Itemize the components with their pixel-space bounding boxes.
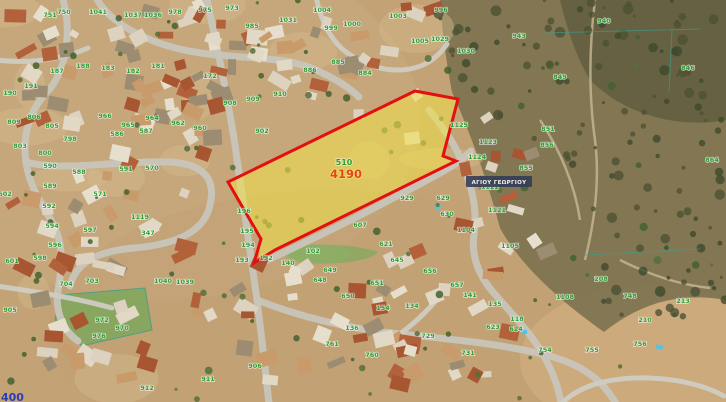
svg-text:960: 960 <box>193 124 207 132</box>
svg-text:756: 756 <box>633 340 647 348</box>
svg-text:912: 912 <box>140 384 154 392</box>
svg-text:1037: 1037 <box>124 11 142 19</box>
svg-text:970: 970 <box>115 324 129 332</box>
svg-text:570: 570 <box>145 164 159 172</box>
svg-text:902: 902 <box>255 127 269 135</box>
street-name-text: ΑΓΙΟΥ ΓΕΩΡΓΙΟΥ <box>472 180 527 186</box>
svg-text:208: 208 <box>594 275 608 283</box>
parcel-lot-number: 510 <box>336 158 353 167</box>
svg-text:118: 118 <box>510 315 524 323</box>
svg-text:602: 602 <box>0 190 12 198</box>
svg-text:855: 855 <box>519 164 533 172</box>
svg-text:135: 135 <box>488 300 502 308</box>
svg-text:656: 656 <box>423 267 437 275</box>
svg-text:213: 213 <box>676 297 690 305</box>
svg-text:657: 657 <box>450 281 464 289</box>
svg-text:597: 597 <box>83 226 97 234</box>
svg-text:592: 592 <box>42 202 56 210</box>
svg-text:187: 187 <box>50 67 64 75</box>
svg-text:588: 588 <box>72 168 86 176</box>
svg-text:607: 607 <box>353 221 367 229</box>
svg-text:965: 965 <box>121 121 135 129</box>
svg-text:181: 181 <box>151 62 165 70</box>
grid-coordinate-label: 400 <box>1 391 24 402</box>
svg-text:806: 806 <box>27 113 41 121</box>
parcel-area-label: 4190 <box>330 167 362 181</box>
svg-text:650: 650 <box>341 292 355 300</box>
svg-text:154: 154 <box>376 304 390 312</box>
svg-text:193: 193 <box>235 256 249 264</box>
svg-text:703: 703 <box>85 277 99 285</box>
svg-text:188: 188 <box>76 62 90 70</box>
svg-text:729: 729 <box>421 332 435 340</box>
svg-text:1040: 1040 <box>154 277 173 285</box>
svg-text:1105: 1105 <box>501 242 520 250</box>
svg-text:975: 975 <box>198 6 212 14</box>
svg-text:972: 972 <box>95 316 109 324</box>
svg-text:102: 102 <box>306 247 320 255</box>
svg-text:943: 943 <box>512 32 526 40</box>
svg-text:1125: 1125 <box>450 121 469 129</box>
street-name-label: ΑΓΙΟΥ ΓΕΩΡΓΙΟΥ <box>466 176 532 187</box>
svg-text:905: 905 <box>3 306 17 314</box>
svg-text:596: 596 <box>48 241 62 249</box>
svg-text:849: 849 <box>553 73 567 81</box>
svg-text:1003: 1003 <box>389 12 407 20</box>
svg-text:885: 885 <box>331 58 345 66</box>
svg-text:731: 731 <box>461 349 475 357</box>
svg-text:190: 190 <box>3 89 17 97</box>
svg-text:803: 803 <box>13 142 27 150</box>
svg-text:704: 704 <box>59 280 73 288</box>
svg-text:846: 846 <box>681 64 695 72</box>
svg-text:134: 134 <box>405 302 419 310</box>
svg-text:182: 182 <box>126 67 140 75</box>
svg-text:755: 755 <box>585 346 599 354</box>
svg-text:623: 623 <box>486 323 500 331</box>
svg-text:624: 624 <box>509 325 523 333</box>
svg-text:183: 183 <box>101 64 115 72</box>
svg-text:964: 964 <box>145 114 159 122</box>
svg-text:172: 172 <box>203 72 217 80</box>
svg-text:194: 194 <box>241 241 255 249</box>
svg-text:1121: 1121 <box>488 206 507 214</box>
svg-text:978: 978 <box>168 8 182 16</box>
svg-text:601: 601 <box>5 257 19 265</box>
svg-text:909: 909 <box>246 95 260 103</box>
svg-text:761: 761 <box>325 340 339 348</box>
svg-text:598: 598 <box>33 254 47 262</box>
svg-text:1000: 1000 <box>343 20 362 28</box>
svg-text:751: 751 <box>43 11 57 19</box>
svg-text:1119: 1119 <box>131 213 150 221</box>
svg-text:140: 140 <box>281 259 295 267</box>
svg-text:136: 136 <box>345 324 359 332</box>
svg-text:651: 651 <box>370 279 384 287</box>
svg-text:966: 966 <box>98 112 112 120</box>
svg-text:587: 587 <box>139 127 153 135</box>
svg-text:908: 908 <box>223 99 237 107</box>
svg-text:760: 760 <box>365 351 379 359</box>
map-viewport[interactable]: 7517501041103710369789759739851031100499… <box>0 0 726 402</box>
svg-text:1104: 1104 <box>457 226 476 234</box>
svg-text:999: 999 <box>324 24 338 32</box>
svg-text:906: 906 <box>248 362 262 370</box>
svg-text:192: 192 <box>259 254 273 262</box>
svg-text:1124: 1124 <box>468 153 487 161</box>
svg-text:1005: 1005 <box>411 37 430 45</box>
svg-text:621: 621 <box>379 240 393 248</box>
svg-text:940: 940 <box>597 17 611 25</box>
svg-text:929: 929 <box>400 194 414 202</box>
svg-text:754: 754 <box>538 346 552 354</box>
svg-text:911: 911 <box>201 375 215 383</box>
svg-text:962: 962 <box>171 119 185 127</box>
svg-text:1030: 1030 <box>457 47 476 55</box>
svg-text:851: 851 <box>541 125 555 133</box>
svg-text:910: 910 <box>273 90 287 98</box>
svg-text:748: 748 <box>623 292 637 300</box>
svg-text:1004: 1004 <box>313 6 332 14</box>
svg-text:884: 884 <box>358 69 372 77</box>
svg-text:809: 809 <box>7 118 21 126</box>
svg-text:1123: 1123 <box>479 138 497 146</box>
svg-text:591: 591 <box>119 165 133 173</box>
svg-text:648: 648 <box>313 276 327 284</box>
svg-text:856: 856 <box>540 141 554 149</box>
svg-text:630: 630 <box>440 210 454 218</box>
svg-text:649: 649 <box>323 266 337 274</box>
svg-text:196: 196 <box>237 207 251 215</box>
svg-text:800: 800 <box>38 149 52 157</box>
svg-text:1039: 1039 <box>176 278 195 286</box>
svg-text:195: 195 <box>240 227 254 235</box>
svg-text:594: 594 <box>45 222 59 230</box>
svg-text:590: 590 <box>43 162 57 170</box>
svg-text:1036: 1036 <box>144 11 163 19</box>
svg-text:973: 973 <box>225 4 239 12</box>
svg-text:1108: 1108 <box>556 293 575 301</box>
svg-text:629: 629 <box>436 194 450 202</box>
svg-text:864: 864 <box>705 156 719 164</box>
svg-text:996: 996 <box>434 6 448 14</box>
svg-text:191: 191 <box>24 82 38 90</box>
svg-text:1041: 1041 <box>89 8 108 16</box>
svg-text:886: 886 <box>303 66 317 74</box>
svg-text:586: 586 <box>110 130 124 138</box>
svg-text:141: 141 <box>463 291 477 299</box>
svg-text:985: 985 <box>245 22 259 30</box>
svg-text:976: 976 <box>92 332 106 340</box>
svg-text:1029: 1029 <box>431 35 450 43</box>
satellite-map-canvas[interactable]: 7517501041103710369789759739851031100499… <box>0 0 726 402</box>
svg-text:805: 805 <box>45 122 59 130</box>
svg-text:589: 589 <box>43 182 57 190</box>
svg-text:1031: 1031 <box>279 16 298 24</box>
svg-text:347: 347 <box>141 229 155 237</box>
svg-text:750: 750 <box>57 8 71 16</box>
svg-text:210: 210 <box>638 316 652 324</box>
svg-text:645: 645 <box>390 256 404 264</box>
svg-text:571: 571 <box>93 190 107 198</box>
svg-text:798: 798 <box>63 135 77 143</box>
